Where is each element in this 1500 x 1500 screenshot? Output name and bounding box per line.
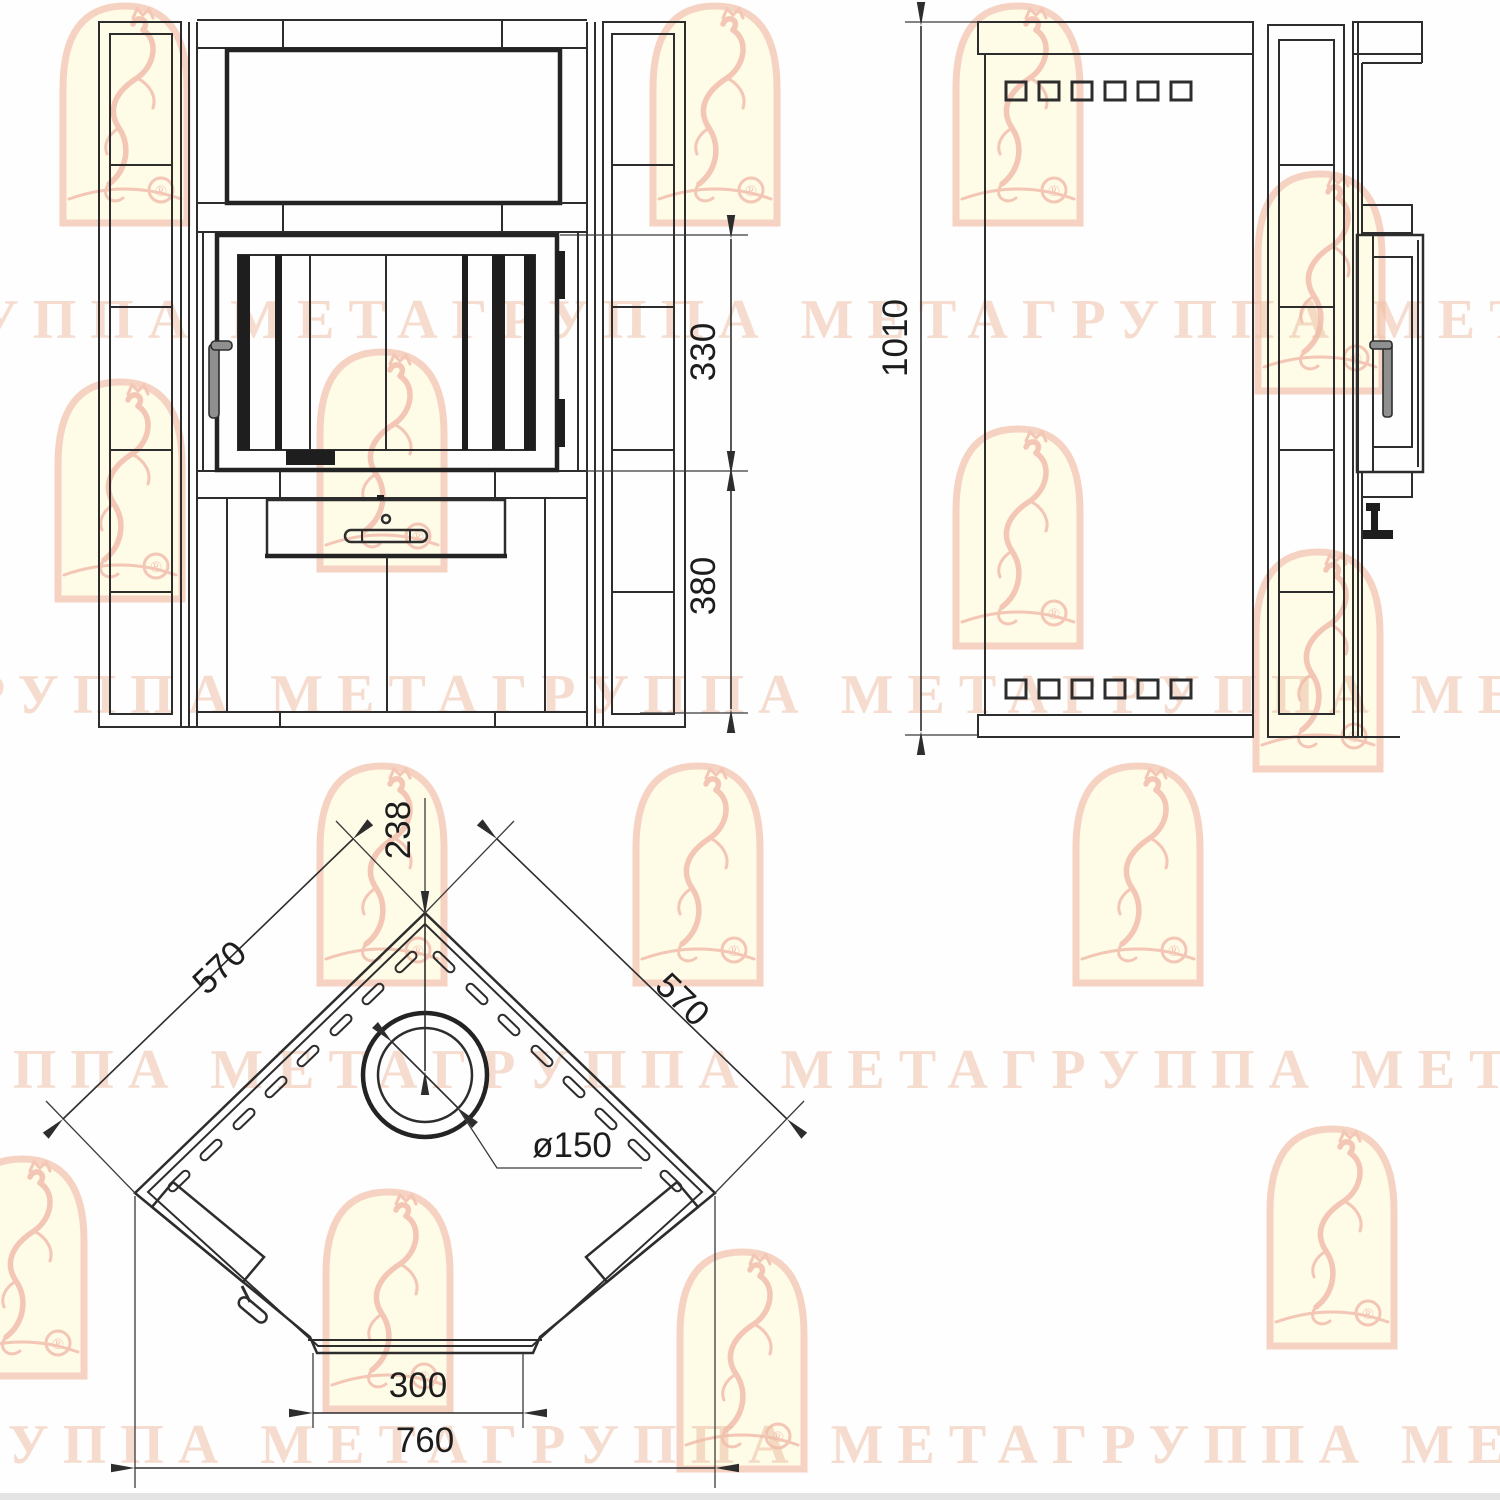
dim-label-door-height: 330: [684, 323, 724, 381]
upper-panel: [227, 50, 560, 203]
dim-label-overall-width: 760: [396, 1421, 454, 1461]
door-handle-profile: [1383, 343, 1392, 417]
door-handle: [209, 344, 219, 418]
latch-profile: [1363, 503, 1393, 539]
bottom-edge-strip: [0, 1493, 1500, 1500]
vent-slots-bottom: [1006, 680, 1191, 698]
door-hinge-top: [556, 251, 565, 299]
top-plate: [978, 22, 1253, 54]
ash-drawer: [265, 495, 507, 556]
stove-drawing: [0, 0, 1500, 1500]
latch-plan: [237, 1286, 269, 1325]
tile-column-plan-right: [586, 1182, 698, 1282]
dim-label-base-height: 380: [684, 557, 724, 615]
firebox-door: [209, 235, 565, 470]
dim-label-corner-to-flue: 238: [379, 801, 419, 859]
base-plate: [978, 715, 1253, 737]
vent-slots-top: [1006, 82, 1191, 100]
front-view: [99, 20, 748, 727]
door-profile: [1357, 205, 1423, 497]
dim-label-front-width: 300: [389, 1366, 447, 1406]
technical-drawing-page: ® МЕТАГРУППА МЕТАГРУППА МЕТАГРУППА МЕТАГ…: [0, 0, 1500, 1500]
door-hinge-bottom: [556, 399, 565, 447]
dim-label-flue-diameter: ø150: [532, 1126, 612, 1166]
dim-label-total-height: 1010: [876, 299, 916, 377]
side-view: [905, 22, 1423, 737]
air-control-lever: [286, 450, 335, 465]
tile-column-plan-left: [152, 1182, 264, 1282]
